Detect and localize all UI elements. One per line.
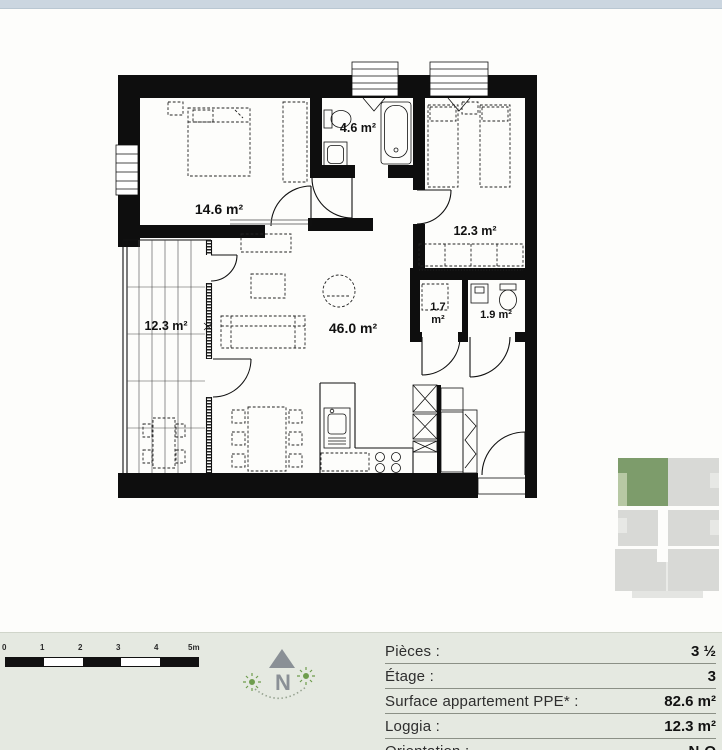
living-furniture: [221, 220, 355, 471]
site-block-strip: [632, 591, 703, 598]
table-row: Surface appartement PPE* : 82.6 m²: [385, 689, 716, 714]
floor-plan: 14.6 m² 4.6 m² 12.3 m² 46.0 m² 1.7 m² 1.…: [115, 58, 541, 504]
site-plan-drawing: [607, 437, 722, 605]
table-row: Pièces : 3 ½: [385, 639, 716, 664]
sun-icon: [243, 673, 261, 691]
walls: [118, 75, 537, 498]
row-value: N-O: [689, 743, 717, 750]
row-value: 82.6 m²: [664, 693, 716, 710]
scale-tick-label: 5m: [188, 643, 200, 652]
row-label: Loggia :: [385, 718, 440, 735]
row-label: Surface appartement PPE* :: [385, 693, 579, 710]
room-label-bathroom: 4.6 m²: [340, 121, 376, 135]
row-label: Étage :: [385, 668, 434, 685]
room-label-bedroom1: 14.6 m²: [195, 201, 244, 217]
site-block-notch: [710, 520, 719, 535]
table-row: Orientation : N-O: [385, 739, 716, 750]
room-label-loggia: 12.3 m²: [144, 319, 187, 333]
footer: 0 1 2 3 4 5m N: [0, 632, 722, 750]
north-arrow-icon: [269, 649, 295, 668]
site-block-gap: [657, 549, 668, 562]
bedroom1-furniture: [168, 102, 307, 182]
floor-plan-drawing: 14.6 m² 4.6 m² 12.3 m² 46.0 m² 1.7 m² 1.…: [115, 58, 541, 504]
bedroom2-furniture: [419, 102, 523, 270]
site-highlighted-loggia: [618, 473, 627, 506]
sun-icon: [297, 667, 315, 685]
room-label-wc: 1.9 m²: [480, 309, 512, 321]
scale-tick-label: 4: [154, 643, 158, 652]
scale-seg: [6, 658, 44, 666]
room-label-bedroom2: 12.3 m²: [453, 224, 496, 238]
scale-tick-label: 3: [116, 643, 120, 652]
scale-seg: [121, 658, 159, 666]
north-letter: N: [275, 670, 291, 695]
loggia-structure: [123, 240, 212, 473]
scale-bar: 0 1 2 3 4 5m: [0, 633, 220, 683]
scale-seg: [160, 658, 198, 666]
scale-tick-label: 0: [2, 643, 6, 652]
north-compass-icon: N: [238, 641, 328, 713]
table-row: Loggia : 12.3 m²: [385, 714, 716, 739]
room-label-reduit-value: 1.7: [430, 301, 445, 313]
row-value: 3: [708, 668, 716, 685]
scale-tick-label: 1: [40, 643, 44, 652]
row-value: 12.3 m²: [664, 718, 716, 735]
kitchen-fixtures: [320, 383, 413, 473]
row-label: Pièces :: [385, 643, 440, 660]
room-label-living: 46.0 m²: [329, 320, 378, 336]
top-strip: [0, 0, 722, 9]
site-plan-thumbnail: [607, 437, 722, 605]
site-block-divider: [667, 549, 668, 591]
row-label: Orientation :: [385, 743, 469, 750]
page: 14.6 m² 4.6 m² 12.3 m² 46.0 m² 1.7 m² 1.…: [0, 0, 722, 750]
compass: N: [238, 641, 328, 713]
scale-seg: [44, 658, 82, 666]
entry-cabinets: [413, 385, 477, 473]
scale-bar-segments: [5, 657, 199, 667]
scale-seg: [83, 658, 121, 666]
scale-tick-label: 2: [78, 643, 82, 652]
site-block-notch: [618, 518, 627, 533]
row-value: 3 ½: [691, 643, 716, 660]
site-block-notch: [710, 473, 719, 488]
room-label-reduit-unit: m²: [431, 314, 445, 326]
table-row: Étage : 3: [385, 664, 716, 689]
wc-fixtures: [471, 284, 517, 310]
apartment-info-table: Pièces : 3 ½ Étage : 3 Surface apparteme…: [385, 639, 716, 750]
